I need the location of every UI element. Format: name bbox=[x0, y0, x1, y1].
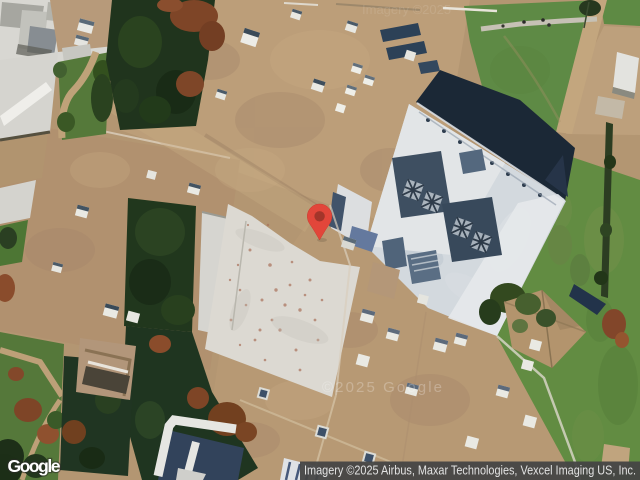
svg-text:Imagery ©2025: Imagery ©2025 bbox=[362, 2, 451, 17]
svg-text:Imagery ©2025 Airbus, Maxar Te: Imagery ©2025 Airbus, Maxar Technologies… bbox=[304, 464, 636, 478]
svg-text:Google: Google bbox=[8, 456, 61, 476]
